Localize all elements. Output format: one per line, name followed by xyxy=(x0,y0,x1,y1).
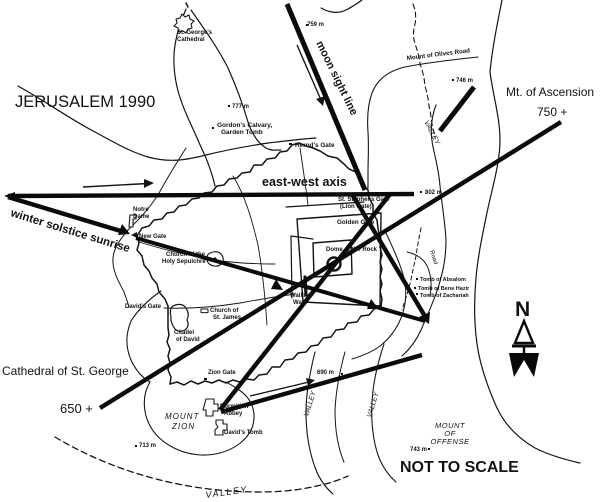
svg-text:Cathedral of St. George: Cathedral of St. George xyxy=(2,364,129,378)
svg-text:Zion Gate: Zion Gate xyxy=(208,370,236,376)
svg-text:Tomb of Bene Hazir: Tomb of Bene Hazir xyxy=(418,286,470,292)
svg-text:David's Gate: David's Gate xyxy=(125,304,162,310)
svg-text:Dormition: Dormition xyxy=(220,404,249,410)
svg-text:Church of the: Church of the xyxy=(166,252,206,258)
svg-text:Wall: Wall xyxy=(293,300,305,306)
svg-text:Notre: Notre xyxy=(133,207,149,213)
svg-text:OFFENSE: OFFENSE xyxy=(431,437,470,446)
svg-text:Garden Tomb: Garden Tomb xyxy=(221,129,263,136)
svg-text:Herod's Gate: Herod's Gate xyxy=(295,142,335,149)
svg-text:of David: of David xyxy=(176,337,200,343)
svg-text:Wailing: Wailing xyxy=(290,293,311,299)
svg-text:Holy Sepulchre: Holy Sepulchre xyxy=(162,259,206,265)
svg-text:Cathedral: Cathedral xyxy=(177,37,205,43)
svg-text:713 m: 713 m xyxy=(139,443,156,449)
svg-text:St. George's: St. George's xyxy=(177,30,213,36)
svg-text:Tomb of Zachariah: Tomb of Zachariah xyxy=(420,293,469,299)
svg-text:David's Tomb: David's Tomb xyxy=(224,430,263,436)
svg-text:690 m: 690 m xyxy=(317,370,334,376)
svg-text:750 +: 750 + xyxy=(537,105,567,119)
svg-text:Abbey: Abbey xyxy=(224,411,243,417)
svg-text:802 m: 802 m xyxy=(425,190,442,196)
svg-text:Dame: Dame xyxy=(133,214,150,220)
svg-text:Citadel: Citadel xyxy=(174,330,194,336)
svg-text:650 +: 650 + xyxy=(60,401,93,416)
svg-text:746 m: 746 m xyxy=(456,78,473,84)
svg-text:St. James: St. James xyxy=(213,315,242,321)
svg-text:759 m: 759 m xyxy=(307,22,324,28)
svg-text:777 m: 777 m xyxy=(232,104,249,110)
svg-text:Gordon's Calvary,: Gordon's Calvary, xyxy=(217,122,272,129)
svg-text:Golden Gate: Golden Gate xyxy=(337,219,375,226)
svg-text:N: N xyxy=(515,298,530,321)
svg-text:743 m: 743 m xyxy=(410,447,427,453)
svg-text:St. Stephens Gate: St. Stephens Gate xyxy=(338,197,390,203)
svg-text:Church of: Church of xyxy=(210,308,239,314)
svg-text:Tomb of Absalom: Tomb of Absalom xyxy=(420,277,466,283)
svg-text:MOUNT: MOUNT xyxy=(165,412,199,421)
svg-text:New Gate: New Gate xyxy=(139,234,167,240)
svg-text:NOT TO SCALE: NOT TO SCALE xyxy=(400,459,519,476)
svg-text:JERUSALEM 1990: JERUSALEM 1990 xyxy=(15,93,155,111)
svg-text:east-west axis: east-west axis xyxy=(262,175,347,189)
svg-text:Mt. of Ascension: Mt. of Ascension xyxy=(506,85,594,99)
svg-text:ZION: ZION xyxy=(171,422,195,431)
svg-text:(Lion Gate): (Lion Gate) xyxy=(340,204,372,210)
svg-text:Dome of the Rock: Dome of the Rock xyxy=(326,247,378,253)
